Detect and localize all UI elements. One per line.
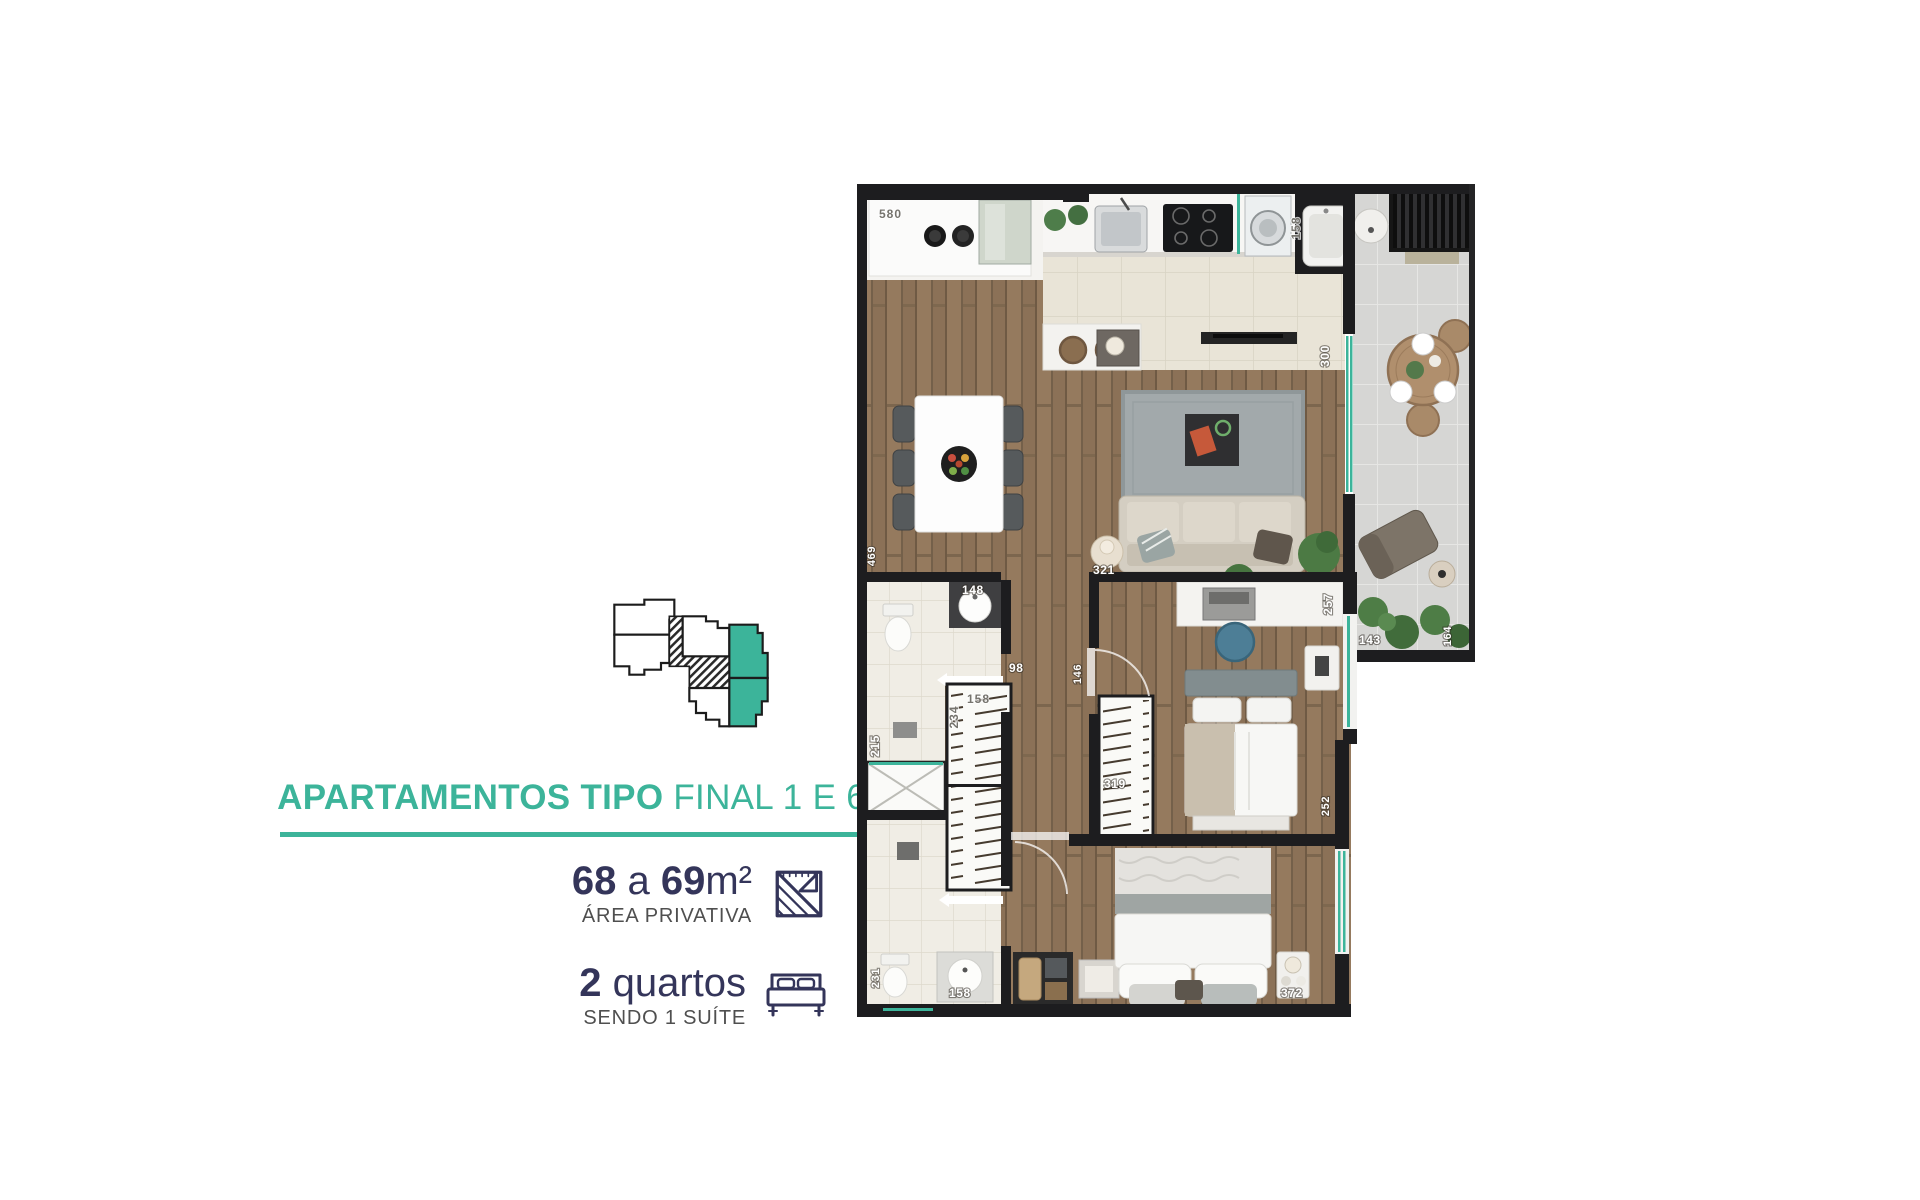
dim-desk: 257	[1321, 593, 1335, 615]
page-title: APARTAMENTOS TIPOFINAL 1 E 6	[277, 778, 866, 818]
balcony-sink	[1354, 209, 1388, 243]
area-num1: 68	[572, 859, 617, 903]
dim-closet-depth: 234	[947, 705, 961, 728]
bedrooms-spec-row: 2 quartos SENDO 1 SUÍTE	[579, 962, 828, 1030]
dim-washer: 158	[1289, 216, 1303, 239]
area-caption: ÁREA PRIVATIVA	[572, 905, 752, 928]
dim-balcony-end: 164	[1442, 626, 1454, 646]
bed2-headboard	[1185, 670, 1297, 696]
bar-stool	[1060, 337, 1086, 363]
bed-icon	[764, 969, 828, 1023]
dim-suite-window: 252	[1320, 796, 1332, 816]
bedrooms-value: 2 quartos	[579, 962, 746, 1004]
dining-area	[893, 396, 1023, 532]
title-regular: FINAL 1 E 6	[673, 778, 866, 817]
desk	[1177, 582, 1343, 626]
page: APARTAMENTOS TIPOFINAL 1 E 6 68 a 69m² Á…	[0, 0, 1920, 1200]
keyplan-highlighted-units	[729, 625, 767, 727]
floorplan: 580 158 300 148 98 215 234 158 146 319 2…	[857, 184, 1519, 1017]
dim-bed2-door: 146	[1072, 664, 1084, 684]
area-num2: 69	[661, 859, 706, 903]
dim-side-table: 321	[1093, 563, 1115, 577]
toilet2	[881, 954, 909, 965]
dim-living: 469	[866, 546, 878, 566]
dim-balcony-door: 300	[1318, 345, 1332, 367]
title-underline	[280, 832, 866, 837]
dim-shower2: 231	[870, 968, 882, 988]
area-connector: a	[627, 859, 649, 903]
bedrooms-caption: SENDO 1 SUÍTE	[579, 1007, 746, 1030]
counter-plant	[1044, 209, 1066, 231]
area-ruler-icon	[770, 865, 828, 923]
suite-window	[1335, 849, 1349, 954]
dim-bed2-wardrobe: 319	[1104, 777, 1126, 791]
dim-suite-nightstand: 372	[1281, 986, 1303, 1000]
bedrooms-label: quartos	[613, 961, 746, 1005]
dim-hall-door: 98	[1009, 661, 1024, 675]
title-bold: APARTAMENTOS TIPO	[277, 778, 663, 817]
suite-bed	[1115, 848, 1271, 894]
spec-area: 68 a 69m² ÁREA PRIVATIVA	[572, 860, 828, 1030]
bedrooms-spec-text: 2 quartos SENDO 1 SUÍTE	[579, 962, 746, 1030]
keyplan-diagram	[596, 578, 796, 748]
desk-chair	[1216, 623, 1254, 661]
bedrooms-num: 2	[579, 961, 601, 1005]
info-panel: APARTAMENTOS TIPOFINAL 1 E 6 68 a 69m² Á…	[280, 578, 866, 1048]
dim-laundry: 580	[879, 207, 902, 221]
dim-bed2-window: 143	[1359, 633, 1381, 647]
pillow	[1247, 698, 1291, 722]
door-slide-bar	[947, 896, 1003, 904]
dim-closet-width: 158	[967, 692, 990, 706]
dim-shower1: 215	[868, 735, 882, 757]
living-area	[1091, 392, 1340, 596]
dim-bath2-sink: 158	[949, 986, 971, 1000]
cooktop	[1163, 204, 1233, 252]
keyplan-bottom-unit	[689, 688, 729, 726]
area-spec-row: 68 a 69m² ÁREA PRIVATIVA	[572, 860, 828, 928]
bed2-bench	[1193, 816, 1289, 830]
toilet	[883, 604, 913, 616]
pillow	[1193, 698, 1241, 722]
area-value: 68 a 69m²	[572, 860, 752, 902]
balcony-chair	[1407, 404, 1439, 436]
area-spec-text: 68 a 69m² ÁREA PRIVATIVA	[572, 860, 752, 928]
keyplan-top-unit	[683, 616, 730, 656]
keyplan-left-unit	[614, 600, 674, 675]
shower2-head	[897, 842, 919, 860]
area-unit: m²	[705, 859, 752, 903]
dim-bath1-sink: 148	[962, 583, 984, 597]
